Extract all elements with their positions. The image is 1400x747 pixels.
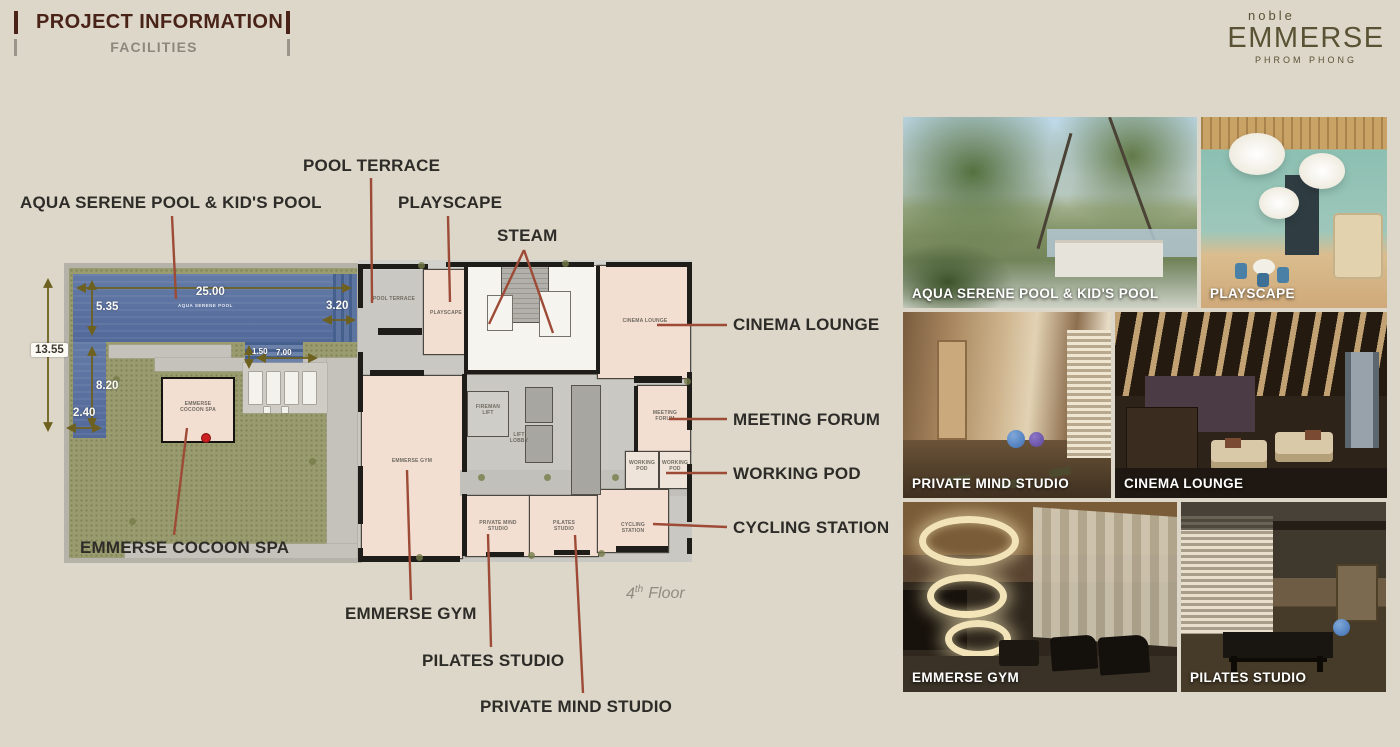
- window-screen: [1067, 330, 1111, 458]
- dark-ceiling-grid: [1181, 502, 1386, 530]
- wall-segment: [687, 538, 692, 554]
- plant: [416, 554, 423, 561]
- steam-room-2: [540, 292, 570, 336]
- plant: [612, 474, 619, 481]
- room-label-playscape: PLAYSCAPE: [424, 310, 468, 316]
- wall-segment: [687, 464, 692, 522]
- header-bar-right-bottom: [287, 39, 290, 56]
- photo-caption: PRIVATE MIND STUDIO: [912, 476, 1069, 491]
- photo-caption: PLAYSCAPE: [1210, 286, 1295, 301]
- room-label-pilates: PILATESSTUDIO: [534, 520, 594, 533]
- wall-segment: [606, 262, 692, 267]
- photo-cinema-lounge: CINEMA LOUNGE: [1115, 312, 1387, 498]
- cocoon-spa-building: EMMERSECOCOON SPA: [161, 377, 235, 443]
- kids-chair: [1257, 273, 1269, 287]
- wall-segment: [370, 370, 424, 376]
- callout-playscape: PLAYSCAPE: [398, 193, 502, 213]
- side-table: [264, 407, 270, 413]
- room-label-cycling: CYCLINGSTATION: [604, 522, 662, 535]
- wall-segment: [358, 352, 363, 412]
- wall-segment: [554, 550, 590, 555]
- dim-pool-width: 5.35: [96, 301, 118, 313]
- brand-logo-name: EMMERSE: [1226, 23, 1386, 53]
- callout-cinema-lounge: CINEMA LOUNGE: [733, 315, 879, 335]
- callout-pool-terrace: POOL TERRACE: [303, 156, 440, 176]
- brand-logo-sub: PHROM PHONG: [1226, 55, 1386, 65]
- cushion: [1305, 430, 1321, 440]
- plant: [528, 552, 535, 559]
- wall-segment: [464, 266, 468, 370]
- callout-meeting-forum: MEETING FORUM: [733, 410, 880, 430]
- wall-segment: [634, 376, 682, 383]
- ring-light: [927, 574, 1007, 618]
- window: [1345, 352, 1379, 448]
- lounge-sofa: [1275, 432, 1333, 462]
- header-bar-left-top: [14, 11, 18, 34]
- photo-emmerse-gym: EMMERSE GYM: [903, 502, 1177, 692]
- room-label-private-mind: PRIVATE MINDSTUDIO: [470, 520, 526, 533]
- callout-pilates-studio: PILATES STUDIO: [422, 651, 564, 671]
- room-cycling-station: [598, 490, 668, 552]
- photo-caption: AQUA SERENE POOL & KID'S POOL: [912, 286, 1159, 301]
- callout-working-pod: WORKING POD: [733, 464, 861, 484]
- dim-site-depth: 13.55: [31, 343, 68, 357]
- cloud-lamp: [1299, 153, 1345, 189]
- kids-chair: [1235, 263, 1247, 279]
- photo-playscape: PLAYSCAPE: [1201, 117, 1387, 308]
- pool-pavilion: [1055, 243, 1163, 277]
- exercise-ball-blue: [1333, 619, 1350, 636]
- wall-shelf: [1336, 564, 1378, 622]
- room-label-meeting-forum: MEETINGFORUM: [646, 410, 684, 423]
- plant: [684, 378, 691, 385]
- wall-segment: [358, 264, 363, 308]
- cloud-lamp: [1259, 187, 1299, 219]
- kids-chair: [1277, 267, 1289, 283]
- reformer-leg: [1317, 656, 1323, 672]
- floor-indicator: 4thFloor: [626, 584, 685, 603]
- cushion: [1225, 438, 1241, 448]
- room-label-emmerse-gym: EMMERSE GYM: [372, 458, 452, 464]
- dim-deck-width: 1.50: [252, 347, 268, 356]
- cabinet: [1127, 408, 1197, 468]
- plant: [562, 260, 569, 267]
- callout-emmerse-gym: EMMERSE GYM: [345, 604, 477, 624]
- wall-segment: [462, 494, 467, 556]
- floorplan-building: POOL TERRACE PLAYSCAPE CINEMA LOUNGE FIR…: [358, 260, 692, 562]
- walkway: [109, 345, 231, 358]
- steam-room-1: [488, 296, 512, 330]
- sun-lounger: [267, 372, 280, 404]
- lift-shaft: [526, 388, 552, 422]
- plant: [544, 474, 551, 481]
- callout-cycling-station: CYCLING STATION: [733, 518, 889, 538]
- wall-segment: [358, 466, 363, 524]
- window-blinds: [1033, 507, 1177, 647]
- exercise-bike: [1098, 634, 1151, 675]
- room-label-working-pod-1: WORKINGPOD: [626, 460, 658, 473]
- cloud-lamp: [1229, 133, 1285, 175]
- dim-pool-length: 25.00: [196, 286, 225, 298]
- photo-pilates-studio: PILATES STUDIO: [1181, 502, 1386, 692]
- plant: [309, 458, 316, 465]
- callout-steam: STEAM: [497, 226, 558, 246]
- callout-aqua-pool: AQUA SERENE POOL & KID'S POOL: [20, 193, 322, 213]
- slide-facilities: PROJECT INFORMATION FACILITIES noble EMM…: [0, 0, 1400, 747]
- photo-private-mind-studio: PRIVATE MIND STUDIO: [903, 312, 1111, 498]
- pool-name-label: AQUA SERENE POOL: [178, 303, 233, 308]
- exercise-ball-blue: [1007, 430, 1025, 448]
- photo-caption: CINEMA LOUNGE: [1124, 476, 1243, 491]
- dim-pool-end: 3.20: [326, 300, 348, 312]
- plant: [129, 518, 136, 525]
- room-label-working-pod-2: WORKINGPOD: [660, 460, 690, 473]
- photo-caption: PILATES STUDIO: [1190, 670, 1306, 685]
- room-label-cocoon-spa: EMMERSECOCOON SPA: [163, 401, 233, 414]
- plant: [598, 550, 605, 557]
- side-table: [282, 407, 288, 413]
- header-bar-right-top: [286, 11, 290, 34]
- photo-caption: EMMERSE GYM: [912, 670, 1019, 685]
- wall-segment: [464, 370, 600, 374]
- lift-shaft-core: [572, 386, 600, 494]
- dim-arm-width: 2.40: [73, 407, 95, 419]
- dim-pool-arm: 8.20: [96, 380, 118, 392]
- room-emmerse-gym: [362, 376, 462, 558]
- brand-logo-noble: noble: [1226, 8, 1386, 23]
- room-label-fireman-lift: FIREMANLIFT: [468, 404, 508, 417]
- page-subtitle: FACILITIES: [36, 39, 272, 55]
- callout-cocoon-spa: EMMERSE COCOON SPA: [80, 538, 289, 558]
- play-shelf: [1333, 213, 1383, 279]
- header-bar-left-bottom: [14, 39, 17, 56]
- room-label-lift-lobby: LIFTLOBBY: [504, 432, 534, 445]
- room-label-pool-terrace: POOL TERRACE: [366, 296, 422, 302]
- page-title: PROJECT INFORMATION: [36, 11, 272, 34]
- dim-deck-length: 7.00: [276, 348, 292, 357]
- wall-segment: [486, 552, 524, 557]
- wall-segment: [378, 328, 422, 335]
- wall-segment: [446, 262, 594, 267]
- gym-equipment: [999, 640, 1039, 666]
- wall-segment: [634, 386, 638, 452]
- wall-segment: [362, 556, 460, 562]
- callout-private-mind-studio: PRIVATE MIND STUDIO: [480, 697, 672, 717]
- wall-segment: [687, 266, 692, 324]
- exercise-bike: [1050, 634, 1098, 671]
- pilates-reformer: [1223, 632, 1333, 658]
- sun-lounger: [285, 372, 298, 404]
- wall-segment: [616, 546, 668, 552]
- plant: [418, 262, 425, 269]
- photo-aqua-pool: AQUA SERENE POOL & KID'S POOL: [903, 117, 1197, 308]
- brand-logo: noble EMMERSE PHROM PHONG: [1226, 8, 1386, 65]
- shelf-column: [939, 342, 965, 438]
- wall-segment: [596, 266, 600, 374]
- wall-segment: [462, 374, 467, 472]
- wood-ceiling: [1201, 117, 1387, 149]
- exercise-ball-purple: [1029, 432, 1044, 447]
- ring-light: [919, 516, 1019, 566]
- sun-lounger: [303, 372, 316, 404]
- plant: [478, 474, 485, 481]
- sun-lounger: [249, 372, 262, 404]
- window-blinds: [1181, 516, 1273, 634]
- room-label-cinema-lounge: CINEMA LOUNGE: [606, 318, 684, 324]
- walkway: [327, 358, 357, 544]
